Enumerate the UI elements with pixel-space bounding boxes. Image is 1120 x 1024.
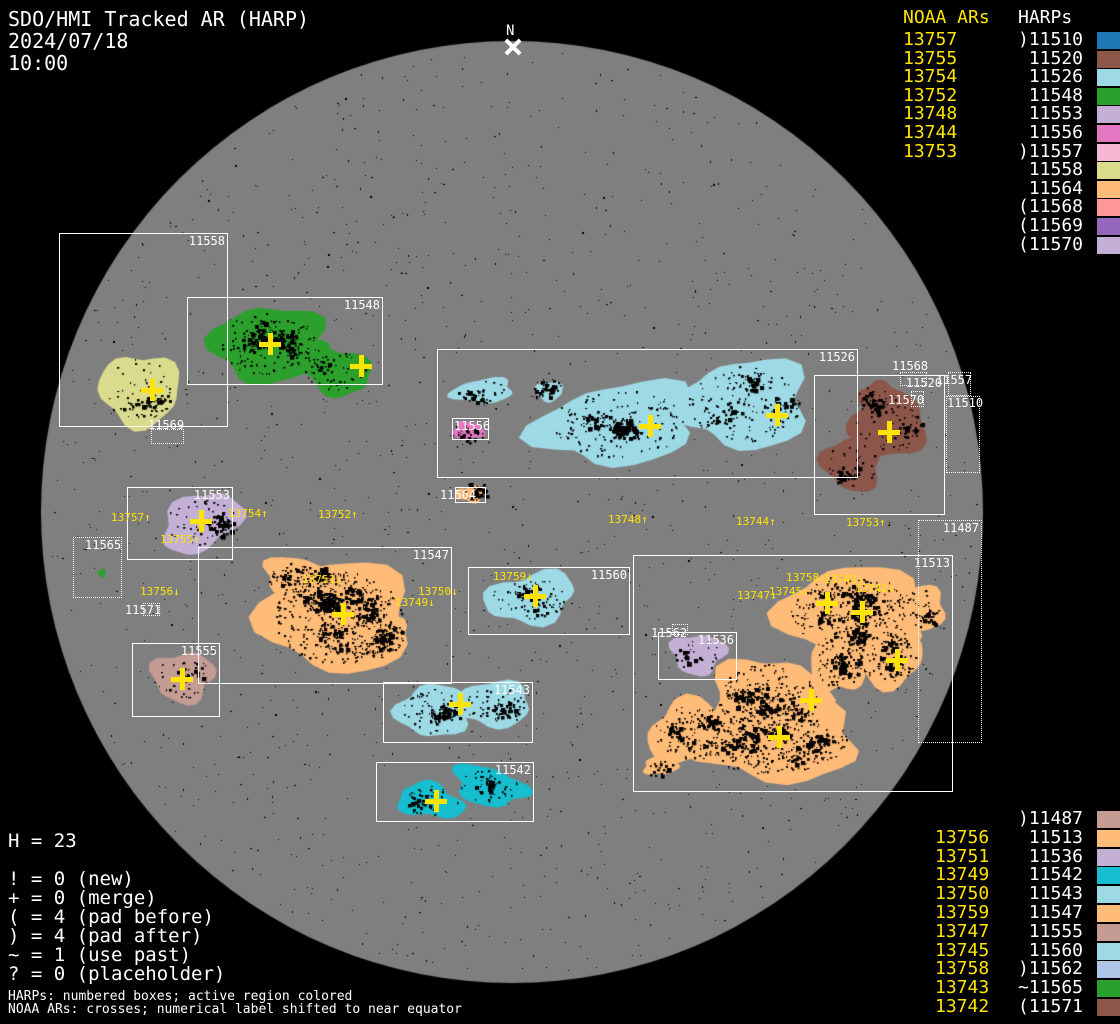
noaa-map-label: 13749↓ — [395, 597, 435, 609]
harp-item: )11562 — [1018, 960, 1083, 978]
harp-box-label: 11562 — [651, 627, 687, 639]
harp-color-swatch — [1097, 905, 1120, 922]
harp-color-swatch — [1097, 999, 1120, 1016]
harp-box-label: 11542 — [495, 764, 531, 776]
noaa-cross — [816, 592, 838, 614]
noaa-cross — [878, 421, 900, 443]
harps-header: HARPs — [1018, 9, 1072, 27]
harp-box-label: 11548 — [344, 299, 380, 311]
noaa-cross — [886, 649, 908, 671]
harp-box-label: 11553 — [194, 489, 230, 501]
noaa-ar-item: 13743 — [935, 979, 989, 997]
noaa-ar-item: 13749 — [935, 866, 989, 884]
harp-color-swatch — [1097, 106, 1120, 123]
harp-color-swatch — [1097, 144, 1120, 161]
harp-box-label: 11555 — [181, 645, 217, 657]
noaa-map-label: 13755↑ — [160, 534, 200, 546]
harp-color-swatch — [1097, 924, 1120, 941]
harp-color-swatch — [1097, 811, 1120, 828]
harp-item: (11569 — [1018, 217, 1083, 235]
date-label: 2024/07/18 — [8, 30, 128, 52]
noaa-map-label: 13748↑ — [608, 514, 648, 526]
noaa-cross — [332, 603, 354, 625]
page-title: SDO/HMI Tracked AR (HARP) — [8, 8, 309, 30]
harp-color-swatch — [1097, 88, 1120, 105]
harp-box-label: 11543 — [494, 684, 530, 696]
harp-item: 11555 — [1018, 923, 1083, 941]
harp-item: 11526 — [1018, 68, 1083, 86]
harp-color-swatch — [1097, 162, 1120, 179]
noaa-cross — [768, 726, 790, 748]
harp-item: 11547 — [1018, 904, 1083, 922]
harp-box-label: 11547 — [413, 549, 449, 561]
harp-box-label: 11565 — [85, 539, 121, 551]
harp-box-label: 11568 — [892, 360, 928, 372]
harp-color-swatch — [1097, 125, 1120, 142]
noaa-cross — [766, 404, 788, 426]
noaa-map-label: 13751↓ — [302, 574, 342, 586]
noaa-cross — [171, 668, 193, 690]
noaa-ar-item: 13744 — [903, 124, 957, 142]
noaa-cross — [800, 689, 822, 711]
north-label: N — [506, 24, 514, 38]
harp-box-11520 — [814, 375, 945, 515]
noaa-cross — [350, 355, 372, 377]
harp-item: 11543 — [1018, 885, 1083, 903]
harp-box-label: 11536 — [698, 634, 734, 646]
harp-item: 11513 — [1018, 829, 1083, 847]
noaa-map-label: 13754↑ — [228, 508, 268, 520]
legend-items: ! = 0 (new)+ = 0 (merge)( = 4 (pad befor… — [8, 870, 225, 984]
harp-box-label: 11526 — [819, 351, 855, 363]
harp-item: 11542 — [1018, 866, 1083, 884]
noaa-cross — [190, 510, 212, 532]
noaa-ar-item: 13759 — [935, 904, 989, 922]
harp-color-swatch — [1097, 32, 1120, 49]
harp-color-swatch — [1097, 961, 1120, 978]
noaa-ar-item: 13753 — [903, 143, 957, 161]
harp-item: (11571 — [1018, 998, 1083, 1016]
noaa-map-label: 13759↓ — [493, 571, 533, 583]
harp-item: )11487 — [1018, 810, 1083, 828]
noaa-map-label: 13742↓ — [855, 583, 895, 595]
noaa-map-label: 13757↑ — [111, 512, 151, 524]
footnote-noaa: NOAA ARs: crosses; numerical label shift… — [8, 1003, 462, 1016]
harp-color-swatch — [1097, 886, 1120, 903]
harp-item: (11570 — [1018, 236, 1083, 254]
noaa-cross — [259, 333, 281, 355]
noaa-map-label: 13752↑ — [318, 509, 358, 521]
harp-item: (11568 — [1018, 198, 1083, 216]
harp-color-swatch — [1097, 849, 1120, 866]
harp-color-swatch — [1097, 51, 1120, 68]
harp-count-line: H = 23 — [8, 832, 77, 851]
harp-box-11487 — [918, 520, 982, 743]
harp-map-stage: SDO/HMI Tracked AR (HARP) 2024/07/18 10:… — [0, 0, 1120, 1024]
harp-box-11547 — [198, 547, 452, 684]
harp-item: ~11565 — [1018, 979, 1083, 997]
noaa-cross — [851, 601, 873, 623]
harp-color-swatch — [1097, 867, 1120, 884]
noaa-ar-item: 13747 — [935, 923, 989, 941]
harp-box-label: 11487 — [943, 522, 979, 534]
harp-item: 11558 — [1018, 161, 1083, 179]
harp-box-label: 11510 — [947, 397, 983, 409]
harp-box-label: 11558 — [189, 235, 225, 247]
harp-box-label: 11571 — [125, 604, 161, 616]
noaa-ar-item: 13757 — [903, 31, 957, 49]
harp-color-swatch — [1097, 199, 1120, 216]
harp-color-swatch — [1097, 830, 1120, 847]
harp-box-label: 11557 — [936, 374, 972, 386]
noaa-ars-header: NOAA ARs — [903, 9, 990, 27]
noaa-ar-item: 13750 — [935, 885, 989, 903]
noaa-cross — [141, 379, 163, 401]
harp-item: 11553 — [1018, 105, 1083, 123]
noaa-ar-item: 13754 — [903, 68, 957, 86]
legend-item: ? = 0 (placeholder) — [8, 965, 225, 984]
time-label: 10:00 — [8, 52, 68, 74]
noaa-cross — [524, 585, 546, 607]
harp-box-label: 11560 — [591, 569, 627, 581]
harp-item: 11556 — [1018, 124, 1083, 142]
noaa-cross — [449, 693, 471, 715]
harp-color-swatch — [1097, 218, 1120, 235]
noaa-ar-item: 13758 — [935, 960, 989, 978]
north-marker-icon — [504, 38, 522, 56]
harp-color-swatch — [1097, 943, 1120, 960]
noaa-map-label: 13756↓ — [140, 586, 180, 598]
harp-box-label: 11569 — [148, 419, 184, 431]
harp-color-swatch — [1097, 69, 1120, 86]
noaa-cross — [639, 415, 661, 437]
harp-color-swatch — [1097, 237, 1120, 254]
noaa-cross — [425, 790, 447, 812]
harp-color-swatch — [1097, 980, 1120, 997]
harp-box-11526 — [437, 349, 858, 478]
noaa-map-label: 13744↑ — [736, 516, 776, 528]
harp-box-label: 11570 — [888, 394, 924, 406]
harp-box-label: 11564 — [440, 489, 476, 501]
harp-color-swatch — [1097, 181, 1120, 198]
harp-box-11568 — [900, 372, 927, 386]
noaa-map-label: 13745↓ — [769, 586, 809, 598]
noaa-ar-item: 13748 — [903, 105, 957, 123]
noaa-ar-item: 13742 — [935, 998, 989, 1016]
noaa-map-label: 13758↓ — [786, 572, 826, 584]
noaa-map-label: 13753↑ — [846, 517, 886, 529]
harp-item: )11510 — [1018, 31, 1083, 49]
noaa-ar-item: 13756 — [935, 829, 989, 847]
harp-box-label: 11556 — [454, 420, 490, 432]
